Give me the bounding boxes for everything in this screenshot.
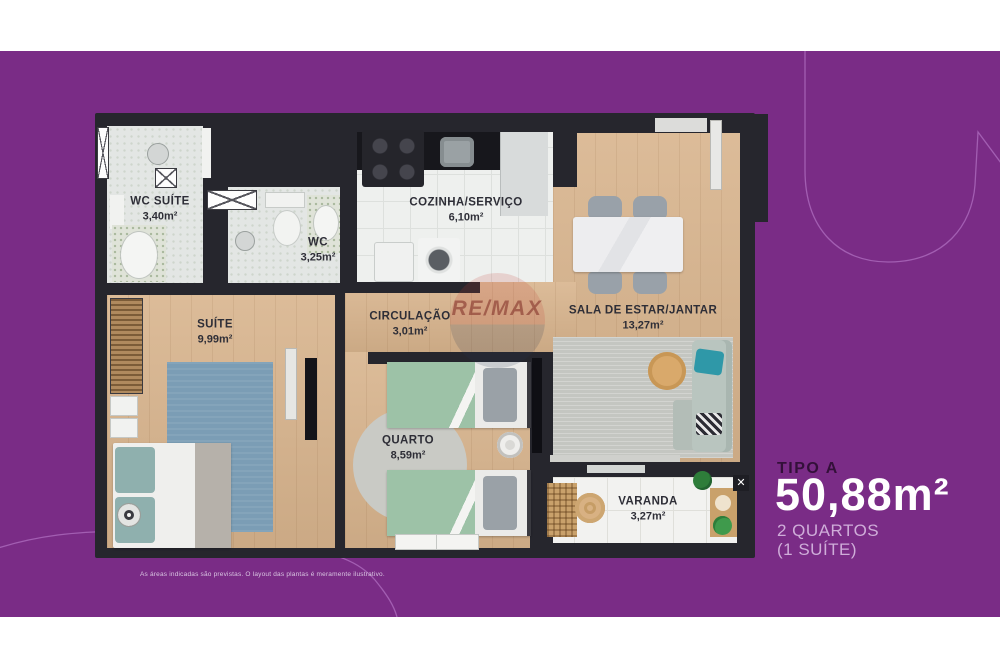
headboard [527, 362, 531, 428]
room-label-wc-suite: WC SUÍTE3,40m² [130, 194, 189, 223]
plant-icon [713, 516, 732, 535]
kitchen-living-wall [553, 118, 577, 187]
unit-bedrooms-label: 2 QUARTOS [777, 521, 879, 541]
bed-blanket [387, 362, 475, 428]
room-label-varanda: VARANDA3,27m² [618, 494, 677, 523]
sliding-door [587, 465, 645, 473]
room-label-suite: SUÍTE9,99m² [197, 317, 233, 346]
stove-icon [362, 130, 424, 187]
zigzag-pillow [696, 413, 722, 435]
plan-wall-step [753, 114, 768, 222]
dining-chair [633, 196, 667, 218]
kitchen-sink-icon [440, 137, 474, 167]
shower-door [202, 128, 211, 178]
bed-duvet [195, 443, 231, 548]
bed-blanket [387, 470, 475, 536]
room-label-wc: WC3,25m² [301, 235, 336, 264]
x-marker-icon: ✕ [733, 475, 749, 491]
shower-drain-icon [235, 231, 255, 251]
coffee-table-icon [648, 352, 686, 390]
bed-pillow [483, 476, 517, 530]
bathroom-shelf [110, 195, 124, 229]
entry-door [710, 120, 722, 190]
floor-plan: ✕ WC SUÍTE3,40m² WC3,25m² COZINHA/SERVIÇ… [95, 113, 755, 558]
bed-pillow [483, 368, 517, 422]
jute-rug-icon [575, 493, 605, 523]
sink-icon [120, 231, 158, 279]
headboard [527, 470, 531, 536]
room-label-circulacao: CIRCULAÇÃO3,01m² [369, 309, 450, 338]
unit-suite-label: (1 SUÍTE) [777, 540, 857, 560]
real-estate-flyer: ✕ WC SUÍTE3,40m² WC3,25m² COZINHA/SERVIÇ… [0, 0, 1000, 667]
toilet-icon [273, 210, 301, 246]
room-label-sala: SALA DE ESTAR/JANTAR13,27m² [569, 303, 717, 332]
side-table-icon [497, 432, 523, 458]
balcony-bench [547, 483, 577, 537]
room-label-quarto: QUARTO8,59m² [382, 433, 434, 462]
unit-area-value: 50,88m² [775, 469, 950, 521]
suite-door [285, 348, 297, 420]
laundry-tank-icon [374, 242, 414, 282]
bed-pillow [115, 447, 155, 493]
plant-icon [693, 471, 712, 490]
under-bed-drawers [395, 534, 479, 550]
single-bed [387, 362, 531, 428]
room-label-cozinha: COZINHA/SERVIÇO6,10m² [409, 195, 522, 224]
toilet-tank [265, 192, 305, 208]
washing-machine-icon [418, 238, 460, 282]
dining-chair [633, 272, 667, 294]
dining-chair [588, 272, 622, 294]
glass-partition-icon [207, 190, 257, 210]
tv-panel [532, 358, 542, 453]
dresser [110, 396, 138, 416]
plate-icon [715, 495, 731, 511]
window-icon [97, 127, 109, 179]
wardrobe-icon [110, 298, 143, 394]
shower-head-icon [147, 143, 169, 165]
speaker-icon [117, 503, 141, 527]
entry-door-leaf [655, 118, 707, 132]
teal-pillow [693, 348, 724, 376]
disclaimer-text: As áreas indicadas são previstas. O layo… [140, 571, 385, 578]
dining-table [573, 217, 683, 272]
suite-tv-panel [305, 358, 317, 440]
remax-watermark: RE/MAX [452, 297, 543, 321]
single-bed [387, 470, 531, 536]
dresser [110, 418, 138, 438]
shower-glass-icon [155, 168, 177, 188]
sliding-door-frame [550, 455, 680, 462]
dining-chair [588, 196, 622, 218]
